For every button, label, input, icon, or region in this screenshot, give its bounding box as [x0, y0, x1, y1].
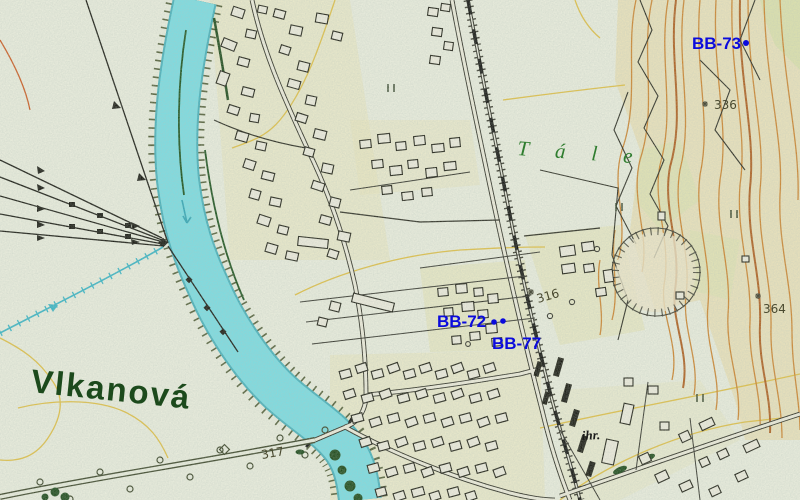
borehole-marker-bb77[interactable]: [500, 318, 506, 324]
borehole-label-bb77: BB-77: [492, 334, 541, 353]
borehole-label-bb73: BB-73: [692, 34, 741, 53]
borehole-marker-bb72[interactable]: [491, 319, 497, 325]
map-canvas: Vlkanová Tále ihr. 336 364 316 317 BB-72…: [0, 0, 800, 500]
elevation-364: 364: [763, 302, 786, 316]
borehole-label-bb72: BB-72: [437, 312, 486, 331]
elevation-336: 336: [714, 98, 737, 112]
field-note-label: ihr.: [581, 427, 600, 443]
topographic-map[interactable]: Vlkanová Tále ihr. 336 364 316 317 BB-72…: [0, 0, 800, 500]
paper-noise-texture: [0, 0, 800, 500]
borehole-marker-bb73[interactable]: [743, 40, 749, 46]
